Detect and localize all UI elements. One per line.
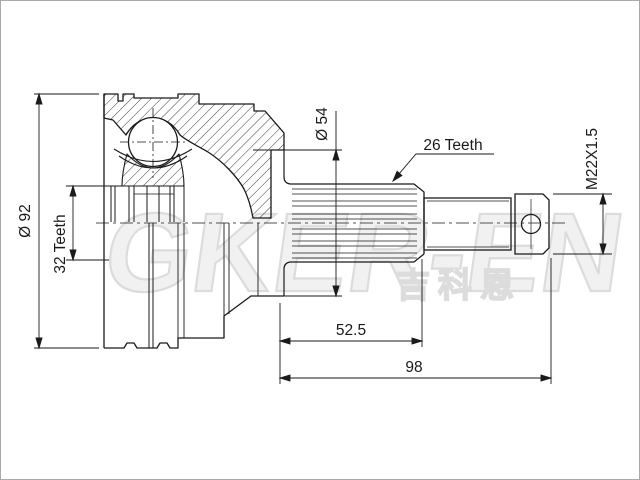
label-outer-diameter: Ø 92 bbox=[17, 204, 34, 238]
boot-seat-collar-top bbox=[284, 150, 290, 184]
dimension-shaft-spline bbox=[393, 154, 494, 181]
label-boot-seat-diameter: Ø 54 bbox=[314, 107, 331, 141]
drawing-page: GKER-EN 吉科恩 bbox=[0, 0, 640, 480]
label-shaft-spline-teeth: 26 Teeth bbox=[423, 137, 482, 154]
label-spline-length: 52.5 bbox=[336, 322, 366, 339]
label-inner-spline-teeth: 32 Teeth bbox=[52, 214, 69, 273]
watermark-cjk: 吉科恩 bbox=[396, 267, 522, 305]
label-shaft-length: 98 bbox=[405, 359, 422, 376]
label-thread-spec: M22X1.5 bbox=[584, 128, 601, 190]
technical-drawing-canvas: GKER-EN 吉科恩 bbox=[1, 1, 639, 479]
